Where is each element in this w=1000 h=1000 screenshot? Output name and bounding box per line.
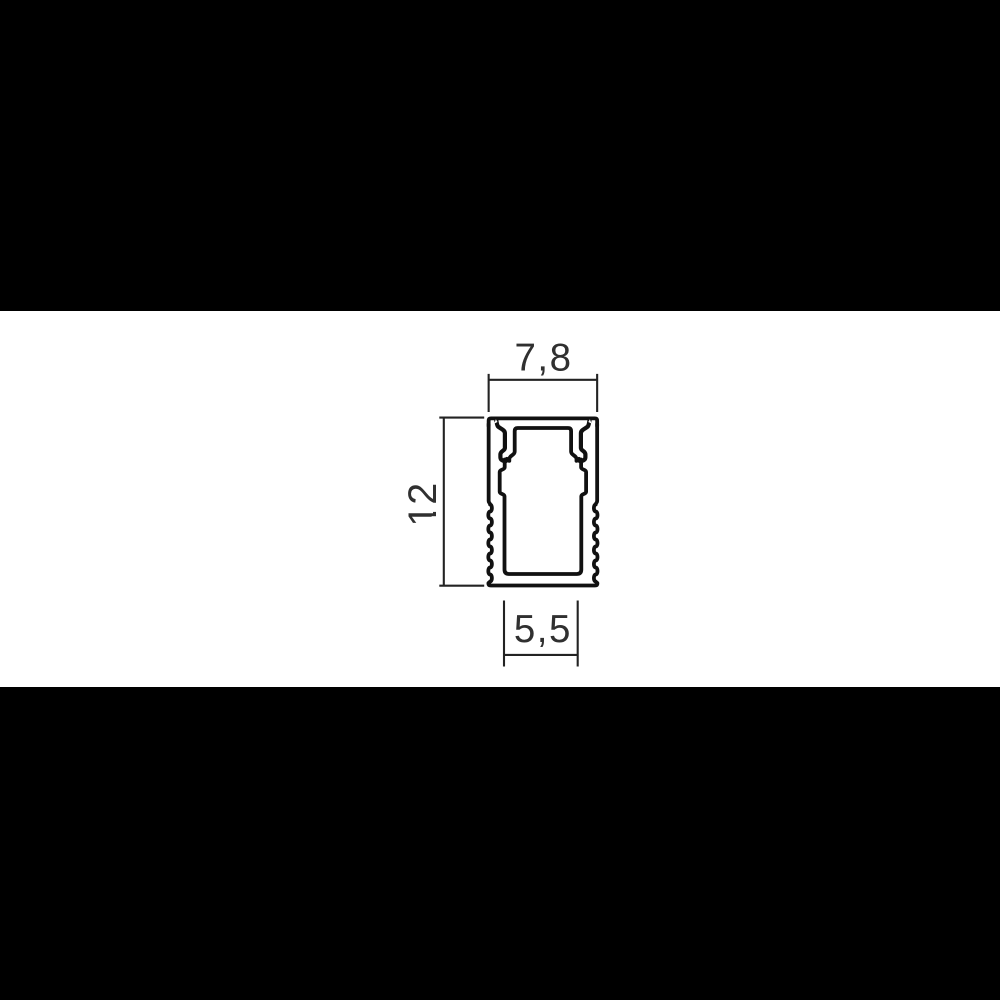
svg-text:7,8: 7,8 — [514, 336, 572, 379]
svg-text:5,5: 5,5 — [514, 608, 572, 651]
